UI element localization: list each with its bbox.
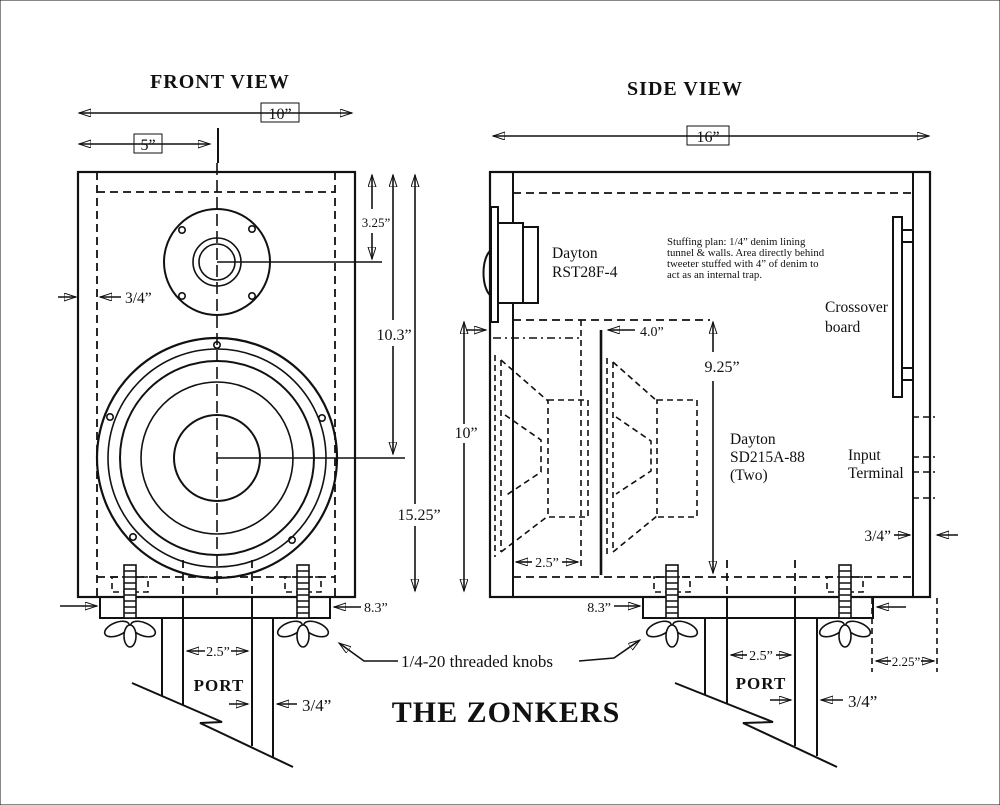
side-view-title: SIDE VIEW [627,78,743,100]
side-woofer-front [495,355,588,557]
front-height-label: 15.25” [397,507,440,524]
terminal-offset-label: 2.25” [892,654,921,669]
background [0,0,1000,805]
tweeter-label-line1: Dayton [552,245,598,262]
woofer-label-line1: Dayton [730,431,776,448]
back-wall-label: 3/4” [864,528,891,545]
front-wall-label: 3/4” [125,290,152,307]
side-woofer-label: Dayton SD215A-88 (Two) [730,431,805,484]
front-cabinet-outline [78,163,355,597]
input-terminal: Input Terminal [848,417,935,498]
front-wall-thickness-dimension: 3/4” [58,290,152,307]
side-woofer-inner [607,358,697,557]
front-port-break-line [132,683,293,767]
side-depth-dimension: 16” [493,126,929,146]
front-base-depth-dimension: 8.3” [60,601,388,616]
tunnel-depth-dimension: 4.0” [608,325,664,340]
front-woofer [97,338,405,578]
blueprint-canvas: FRONT VIEW 10” 5” [0,0,1000,805]
woofer-label-line3: (Two) [730,467,768,484]
side-port-width-dimension: 2.5” [731,649,791,664]
front-port-width-dimension: 2.5” [187,645,248,660]
front-view: FRONT VIEW 10” 5” [58,71,441,767]
side-depth-label: 16” [696,129,719,146]
front-width-dimension: 10” [79,103,352,123]
front-port-label: PORT [194,676,245,695]
side-port-wall-dimension: 3/4” [770,692,877,711]
input-label-line2: Terminal [848,465,904,482]
annotations: 1/4-20 threaded knobs THE ZONKERS [339,640,640,729]
side-front-height-label: 10” [454,425,477,442]
magnet-gap-label: 2.5” [535,556,559,571]
side-port-label: PORT [736,674,787,693]
crossover-label-line2: board [825,319,861,336]
front-half-width-dimension: 5” [79,128,218,163]
side-port-break-line [675,683,837,767]
tunnel-depth-label: 4.0” [640,325,664,340]
knob-note-label: 1/4-20 threaded knobs [401,652,553,671]
terminal-offset-dimension: 2.25” [872,598,937,672]
crossover-board [893,217,913,397]
front-port-wall-label: 3/4” [302,696,331,715]
front-port [132,560,293,767]
woofer-tunnel [493,320,710,575]
front-tweeter-offset-dimension: 3.25” [362,175,391,259]
front-height-dimension: 15.25” [397,175,440,591]
front-port-width-label: 2.5” [206,645,230,660]
front-tweeter-offset-label: 3.25” [362,215,391,230]
input-label-line1: Input [848,447,881,464]
tweeter-label-line2: RST28F-4 [552,264,618,281]
magnet-gap-dimension: 2.5” [516,556,578,571]
side-port-wall-label: 3/4” [848,692,877,711]
internal-height-label: 9.25” [704,359,739,376]
side-tweeter [484,207,539,322]
crossover-label-line1: Crossover [825,299,889,316]
front-half-width-label: 5” [140,137,155,154]
side-base-depth-label: 8.3” [587,601,611,616]
side-tweeter-label: Dayton RST28F-4 [552,245,618,281]
front-width-label: 10” [268,106,291,123]
back-wall-dimension: 3/4” [864,528,958,545]
drawing-title: THE ZONKERS [392,696,621,729]
front-woofer-offset-label: 10.3” [376,327,411,344]
side-front-height-dimension: 10” [454,322,486,591]
front-port-wall-dimension: 3/4” [229,696,331,715]
front-base-depth-label: 8.3” [364,601,388,616]
side-knob-left [645,565,700,647]
front-view-title: FRONT VIEW [150,71,290,93]
stuffing-note-line4: act as an internal trap. [667,269,762,281]
woofer-label-line2: SD215A-88 [730,449,805,466]
crossover-label: Crossover board [825,299,889,336]
front-tweeter [164,209,382,315]
stuffing-note: Stuffing plan: 1/4” denim lining tunnel … [667,236,825,281]
side-port-width-label: 2.5” [749,649,773,664]
side-base-depth-dimension: 8.3” [587,601,906,616]
